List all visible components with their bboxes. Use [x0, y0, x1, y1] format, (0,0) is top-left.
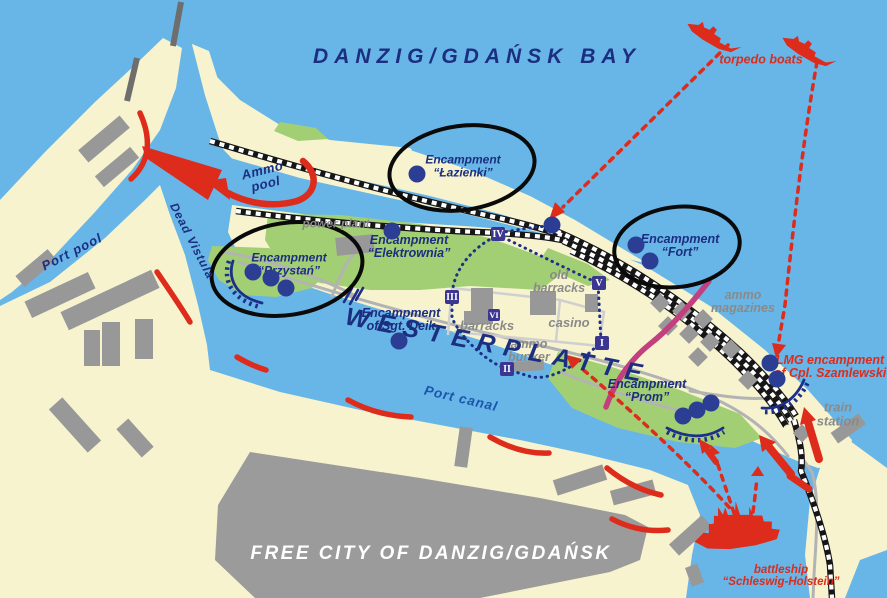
label-train-station: trainstation [817, 400, 860, 427]
encampment-dot-lmg [769, 371, 786, 388]
encampment-dot-prom [703, 395, 720, 412]
label-port-pool: Port pool [39, 231, 104, 273]
encampment-dot-przystan [278, 280, 295, 297]
label-power-plant: power plant [302, 218, 369, 231]
encampment-dot-shore-rail [544, 217, 561, 234]
encampment-dot-elektrownia [384, 223, 401, 240]
label-bay-title: DANZIG/GDAŃSK BAY [313, 46, 641, 68]
encampment-dot-fort [628, 237, 645, 254]
guard-post-II: II [500, 362, 514, 376]
westerplatte-map: DANZIG/GDAŃSK BAYtorpedo boatsAmmopoolDe… [0, 0, 887, 598]
encampment-dot-sgt-deik [391, 333, 408, 350]
label-free-city: FREE CITY OF DANZIG/GDAŃSK [250, 544, 611, 564]
label-battleship-schleswig-holstein: battleship“Schleswig-Holstein” [723, 564, 840, 588]
guard-post-IV: IV [491, 227, 505, 241]
encampment-dot-lazienki [409, 166, 426, 183]
encampment-dot-przystan [263, 270, 280, 287]
label-encampment-prom: Encampment“Prom” [608, 378, 687, 404]
label-old-barracks: oldbarracks [533, 269, 585, 295]
encampment-dot-lmg [762, 355, 779, 372]
label-lmg-encampment: LMG encampmentof Cpl. Szamlewski [774, 354, 887, 380]
label-casino: casino [548, 316, 589, 330]
label-encampment-elektrownia: Encampment“Elektrownia” [368, 234, 451, 260]
label-port-canal: Port canal [423, 384, 500, 415]
encampment-dot-przystan [245, 264, 262, 281]
encampment-dot-fort [642, 253, 659, 270]
label-ammo-magazines: ammomagazines [711, 289, 775, 315]
guard-post-I: I [595, 336, 609, 350]
label-overlay: DANZIG/GDAŃSK BAYtorpedo boatsAmmopoolDe… [0, 0, 887, 598]
guard-post-VI: VI [488, 309, 500, 321]
label-encampment-lazienki: Encampment“Łazienki” [425, 153, 500, 178]
label-dead-vistula: Dead Vistula [167, 201, 216, 281]
label-ammo-pool: Ammopool [240, 159, 288, 196]
guard-post-V: V [592, 276, 606, 290]
guard-post-III: III [445, 290, 459, 304]
label-torpedo-boats: torpedo boats [719, 53, 802, 66]
